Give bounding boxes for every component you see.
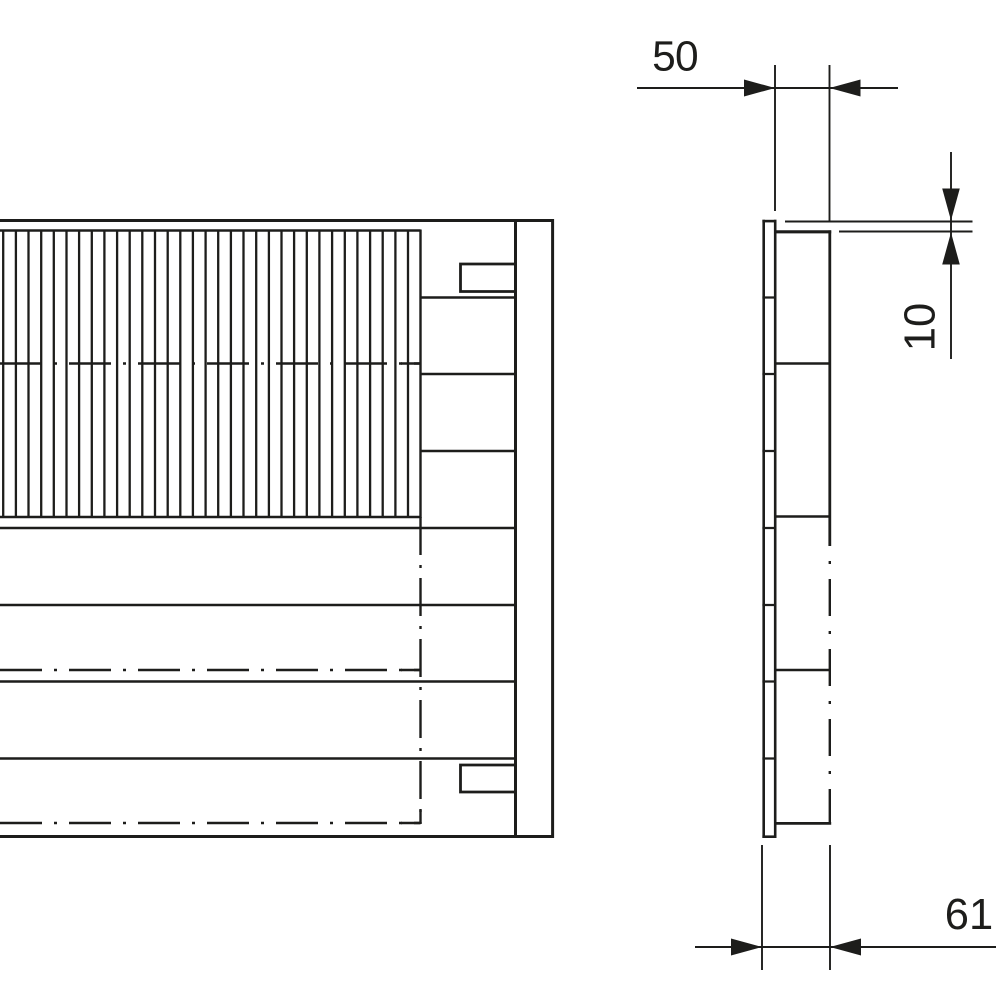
svg-text:50: 50 — [652, 34, 698, 81]
svg-text:61: 61 — [945, 891, 993, 939]
svg-text:10: 10 — [897, 303, 945, 351]
